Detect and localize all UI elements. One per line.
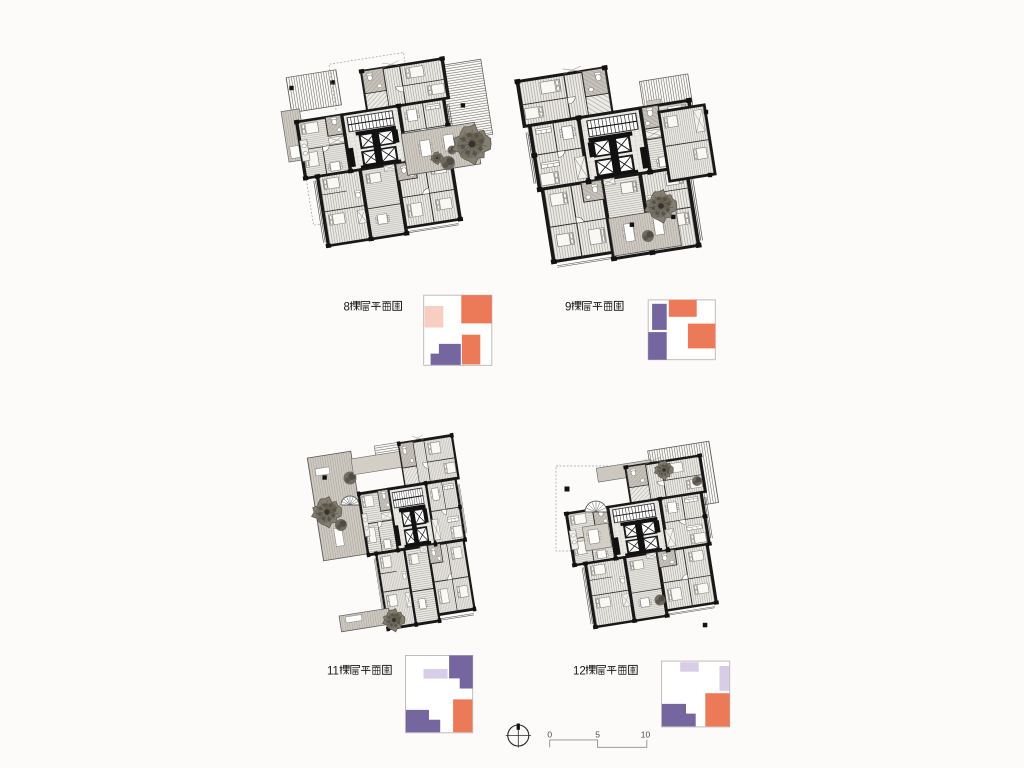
svg-text:0: 0 bbox=[547, 729, 552, 739]
svg-text:12: 12 bbox=[573, 666, 586, 678]
svg-text:5: 5 bbox=[595, 729, 600, 739]
svg-text:8: 8 bbox=[344, 302, 350, 314]
svg-text:9: 9 bbox=[565, 302, 571, 314]
svg-text:10: 10 bbox=[641, 729, 651, 739]
svg-text:11: 11 bbox=[327, 666, 339, 678]
